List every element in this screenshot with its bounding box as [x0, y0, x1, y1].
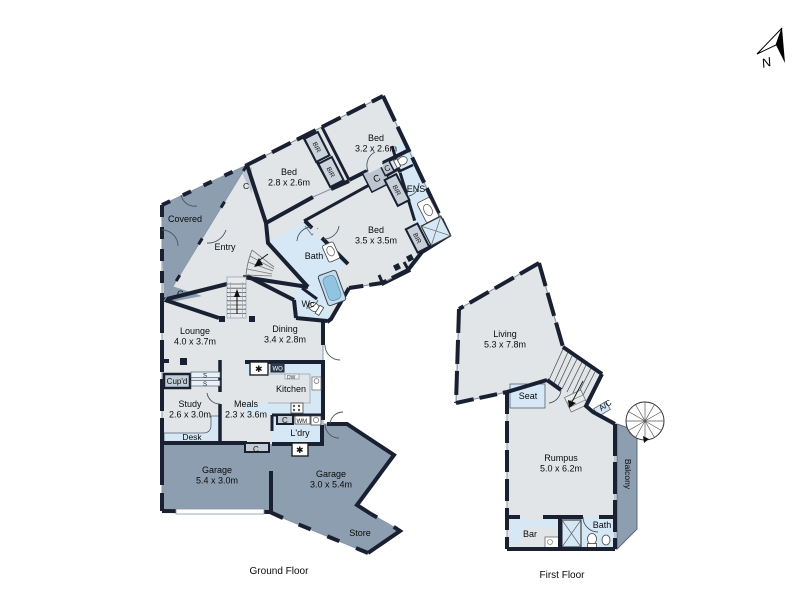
svg-text:Bed: Bed	[368, 225, 384, 235]
svg-text:2.6 x 3.0m: 2.6 x 3.0m	[169, 409, 211, 419]
svg-text:Study: Study	[178, 399, 202, 409]
svg-text:C: C	[253, 445, 259, 454]
svg-text:Bath: Bath	[305, 251, 324, 261]
svg-text:Store: Store	[349, 528, 371, 538]
svg-text:Bed: Bed	[368, 133, 384, 143]
svg-text:Lounge: Lounge	[180, 326, 210, 336]
svg-text:Covered: Covered	[168, 214, 202, 224]
svg-text:✱: ✱	[296, 445, 304, 455]
svg-text:S: S	[203, 374, 207, 380]
svg-text:First Floor: First Floor	[540, 570, 586, 581]
svg-text:Meals: Meals	[234, 399, 259, 409]
svg-text:2.3 x 3.6m: 2.3 x 3.6m	[225, 409, 267, 419]
svg-text:3.5 x 3.5m: 3.5 x 3.5m	[355, 235, 397, 245]
svg-text:N: N	[760, 54, 774, 71]
svg-text:3.0 x 5.4m: 3.0 x 5.4m	[310, 479, 352, 489]
svg-text:✱: ✱	[255, 364, 263, 374]
svg-text:WO: WO	[273, 367, 284, 373]
svg-text:Garage: Garage	[202, 465, 232, 475]
svg-text:5.0 x 6.2m: 5.0 x 6.2m	[540, 463, 582, 473]
svg-text:Cup'd: Cup'd	[167, 377, 188, 386]
svg-text:C: C	[282, 416, 288, 425]
svg-text:Bath: Bath	[593, 520, 612, 530]
svg-text:Desk: Desk	[182, 432, 202, 442]
svg-text:WM: WM	[297, 419, 308, 425]
svg-text:Garage: Garage	[316, 469, 346, 479]
svg-text:3.4 x 2.8m: 3.4 x 2.8m	[264, 334, 306, 344]
svg-text:Kitchen: Kitchen	[276, 384, 306, 394]
svg-text:DW: DW	[287, 375, 296, 381]
svg-text:5.4 x 3.0m: 5.4 x 3.0m	[196, 475, 238, 485]
svg-text:Dining: Dining	[272, 324, 298, 334]
svg-text:Bar: Bar	[523, 529, 537, 539]
svg-text:Bed: Bed	[281, 167, 297, 177]
svg-text:Entry: Entry	[214, 242, 236, 252]
svg-text:S: S	[203, 382, 207, 388]
svg-text:5.3 x 7.8m: 5.3 x 7.8m	[484, 339, 526, 349]
svg-text:Seat: Seat	[519, 391, 538, 401]
svg-text:Living: Living	[493, 329, 517, 339]
svg-text:A/C: A/C	[597, 398, 613, 413]
svg-text:Rumpus: Rumpus	[544, 453, 578, 463]
svg-text:L'dry: L'dry	[290, 428, 310, 438]
svg-text:Ground Floor: Ground Floor	[250, 566, 310, 577]
svg-text:Wc: Wc	[302, 299, 315, 309]
svg-text:ENS: ENS	[407, 184, 426, 194]
svg-text:C: C	[243, 181, 249, 191]
svg-text:Balcony: Balcony	[623, 459, 633, 490]
svg-text:2.8 x 2.6m: 2.8 x 2.6m	[268, 177, 310, 187]
svg-text:4.0 x 3.7m: 4.0 x 3.7m	[174, 336, 216, 346]
svg-text:3.2 x 2.6m: 3.2 x 2.6m	[355, 143, 397, 153]
